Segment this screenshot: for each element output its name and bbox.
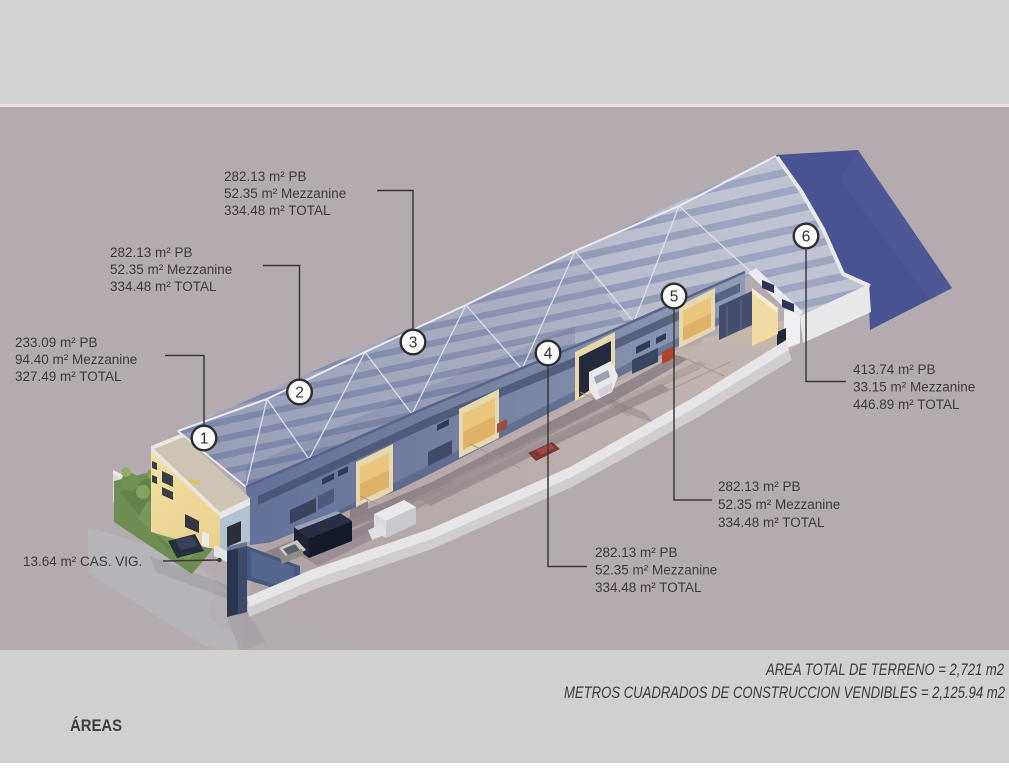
svg-text:413.74 m² PB: 413.74 m² PB bbox=[853, 362, 936, 377]
svg-text:282.13 m² PB: 282.13 m² PB bbox=[224, 169, 307, 184]
svg-text:327.49 m² TOTAL: 327.49 m² TOTAL bbox=[15, 369, 122, 384]
svg-text:1: 1 bbox=[200, 431, 209, 448]
svg-text:ÁREAS: ÁREAS bbox=[70, 716, 122, 735]
svg-text:6: 6 bbox=[802, 229, 811, 246]
svg-text:AREA TOTAL DE TERRENO = 2,721: AREA TOTAL DE TERRENO = 2,721 m2 bbox=[765, 661, 1004, 679]
svg-text:52.35 m² Mezzanine: 52.35 m² Mezzanine bbox=[224, 186, 346, 201]
svg-text:52.35 m² Mezzanine: 52.35 m² Mezzanine bbox=[110, 262, 232, 277]
svg-text:334.48 m² TOTAL: 334.48 m² TOTAL bbox=[718, 515, 825, 530]
svg-text:33.15 m² Mezzanine: 33.15 m² Mezzanine bbox=[853, 380, 975, 395]
svg-text:334.48 m² TOTAL: 334.48 m² TOTAL bbox=[595, 580, 702, 595]
svg-text:446.89 m² TOTAL: 446.89 m² TOTAL bbox=[853, 397, 960, 412]
svg-text:334.48 m² TOTAL: 334.48 m² TOTAL bbox=[224, 203, 331, 218]
svg-text:52.35 m² Mezzanine: 52.35 m² Mezzanine bbox=[718, 497, 840, 512]
svg-text:52.35 m² Mezzanine: 52.35 m² Mezzanine bbox=[595, 563, 717, 578]
svg-text:334.48 m² TOTAL: 334.48 m² TOTAL bbox=[110, 279, 217, 294]
svg-text:282.13 m² PB: 282.13 m² PB bbox=[718, 479, 801, 494]
svg-text:3: 3 bbox=[409, 335, 418, 352]
svg-text:233.09 m² PB: 233.09 m² PB bbox=[15, 335, 98, 350]
svg-text:2: 2 bbox=[295, 385, 304, 402]
svg-text:282.13 m² PB: 282.13 m² PB bbox=[595, 545, 678, 560]
svg-text:94.40 m² Mezzanine: 94.40 m² Mezzanine bbox=[15, 352, 137, 367]
svg-text:METROS CUADRADOS DE CONSTRUCCI: METROS CUADRADOS DE CONSTRUCCION VENDIBL… bbox=[564, 684, 1005, 702]
svg-text:4: 4 bbox=[544, 346, 553, 363]
svg-text:282.13 m² PB: 282.13 m² PB bbox=[110, 245, 193, 260]
svg-text:5: 5 bbox=[670, 289, 679, 306]
svg-text:13.64 m² CAS. VIG.: 13.64 m² CAS. VIG. bbox=[23, 554, 142, 569]
